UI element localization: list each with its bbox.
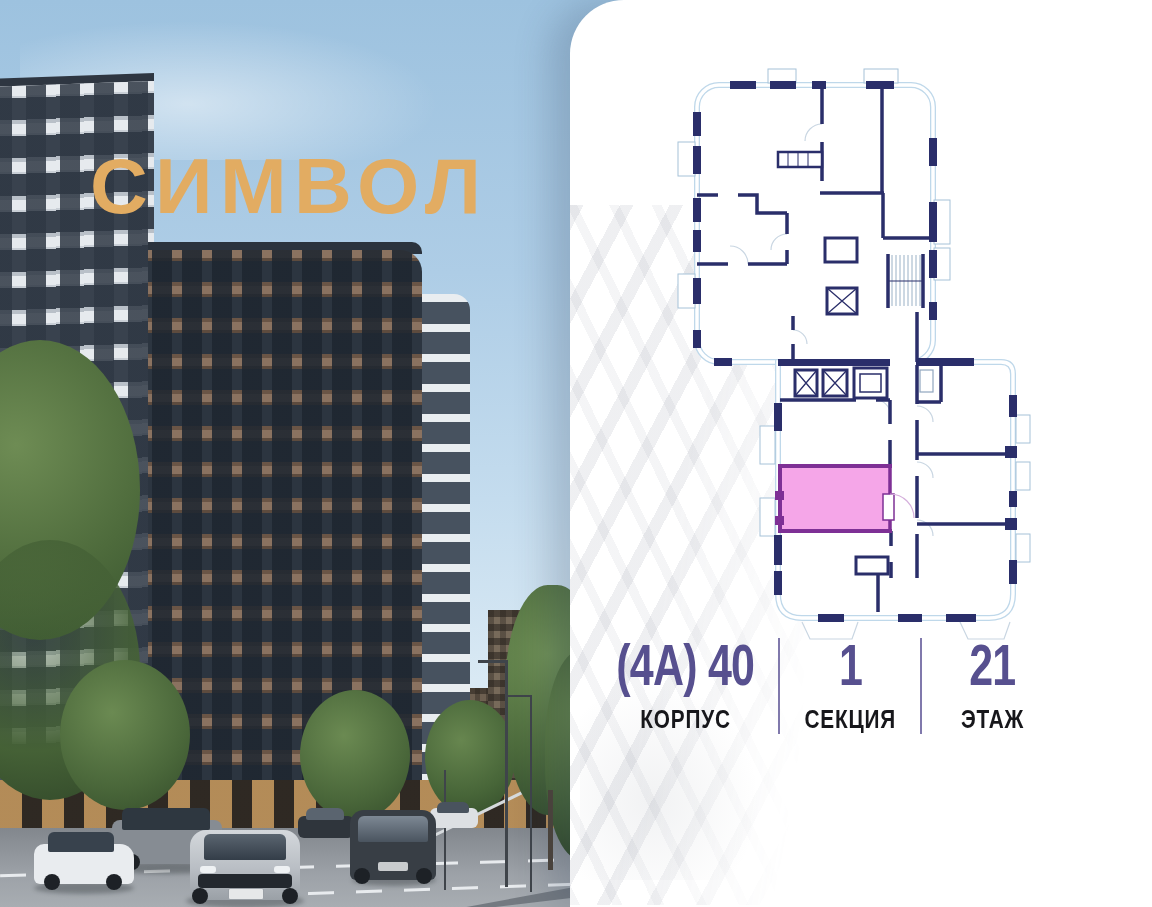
- distant-dark-car: [298, 808, 354, 842]
- project-logo: СИМВОЛ: [90, 142, 589, 231]
- elevator-core-wall: [778, 359, 890, 366]
- section-value: 1: [839, 634, 862, 696]
- white-sedan: [34, 828, 134, 894]
- building-label: КОРПУС: [640, 704, 730, 734]
- info-section: 1 СЕКЦИЯ: [780, 634, 920, 734]
- street-lamp-arm: [507, 695, 532, 697]
- car-grille: [198, 874, 292, 888]
- info-building: (4А) 40 КОРПУС: [592, 634, 778, 734]
- balcony-box: [856, 557, 888, 574]
- floor-value: 21: [969, 634, 1015, 696]
- elevator-shafts: [795, 368, 887, 398]
- dark-minivan: [350, 800, 436, 886]
- unit-info: (4А) 40 КОРПУС 1 СЕКЦИЯ 21 ЭТАЖ: [592, 634, 1062, 734]
- tree-trunk: [548, 790, 553, 870]
- building-value: (4А) 40: [616, 634, 754, 696]
- detail-panel: (4А) 40 КОРПУС 1 СЕКЦИЯ 21 ЭТАЖ: [570, 0, 1152, 907]
- tree: [60, 660, 190, 810]
- floor-label: ЭТАЖ: [960, 704, 1023, 734]
- tree: [425, 700, 515, 815]
- license-plate: [228, 888, 264, 900]
- section-label: СЕКЦИЯ: [805, 704, 896, 734]
- street-lamp-arm: [478, 660, 508, 663]
- distant-white-car: [430, 802, 478, 832]
- page: СИМВОЛ: [0, 0, 1152, 907]
- info-floor: 21 ЭТАЖ: [922, 634, 1062, 734]
- silver-sedan: [184, 822, 306, 906]
- street-lamp: [530, 697, 532, 892]
- floor-plan: [670, 50, 1050, 640]
